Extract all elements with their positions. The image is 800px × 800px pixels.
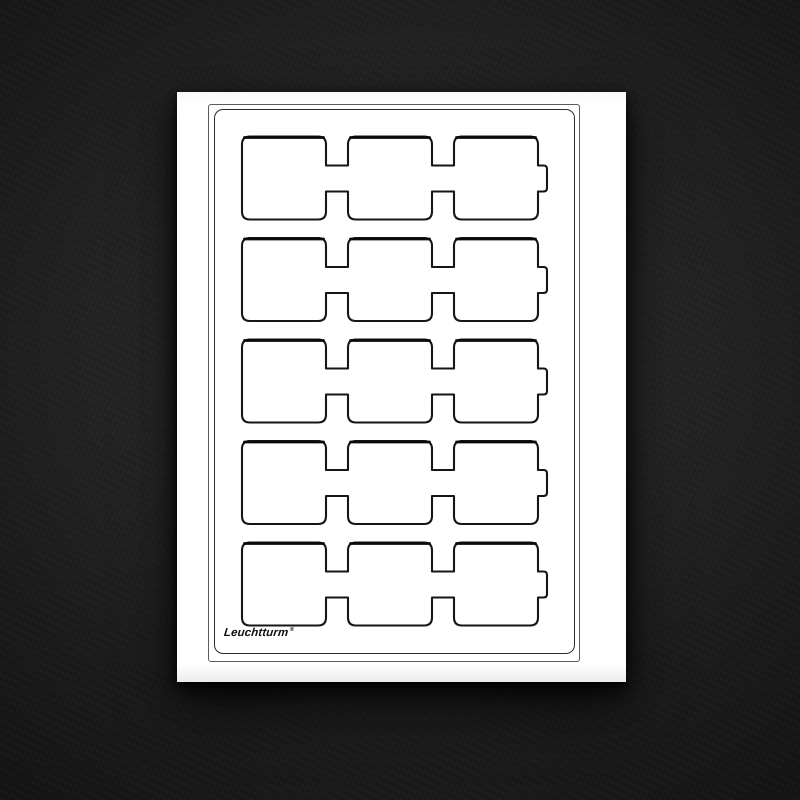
brand-logo-text: Leuchtturm [223,627,289,639]
pocket-row-2 [242,238,547,321]
brand-logo: Leuchtturm® [223,627,294,639]
pocket-grid [177,92,626,682]
coin-tray-card: Leuchtturm® [177,92,626,682]
pocket-row-5 [242,543,547,626]
pocket-row-3 [242,340,547,423]
pocket-row-4 [242,441,547,524]
pocket-row-1 [242,137,547,220]
studio-backdrop: Leuchtturm® [0,0,800,800]
registered-trademark-icon: ® [289,627,294,633]
